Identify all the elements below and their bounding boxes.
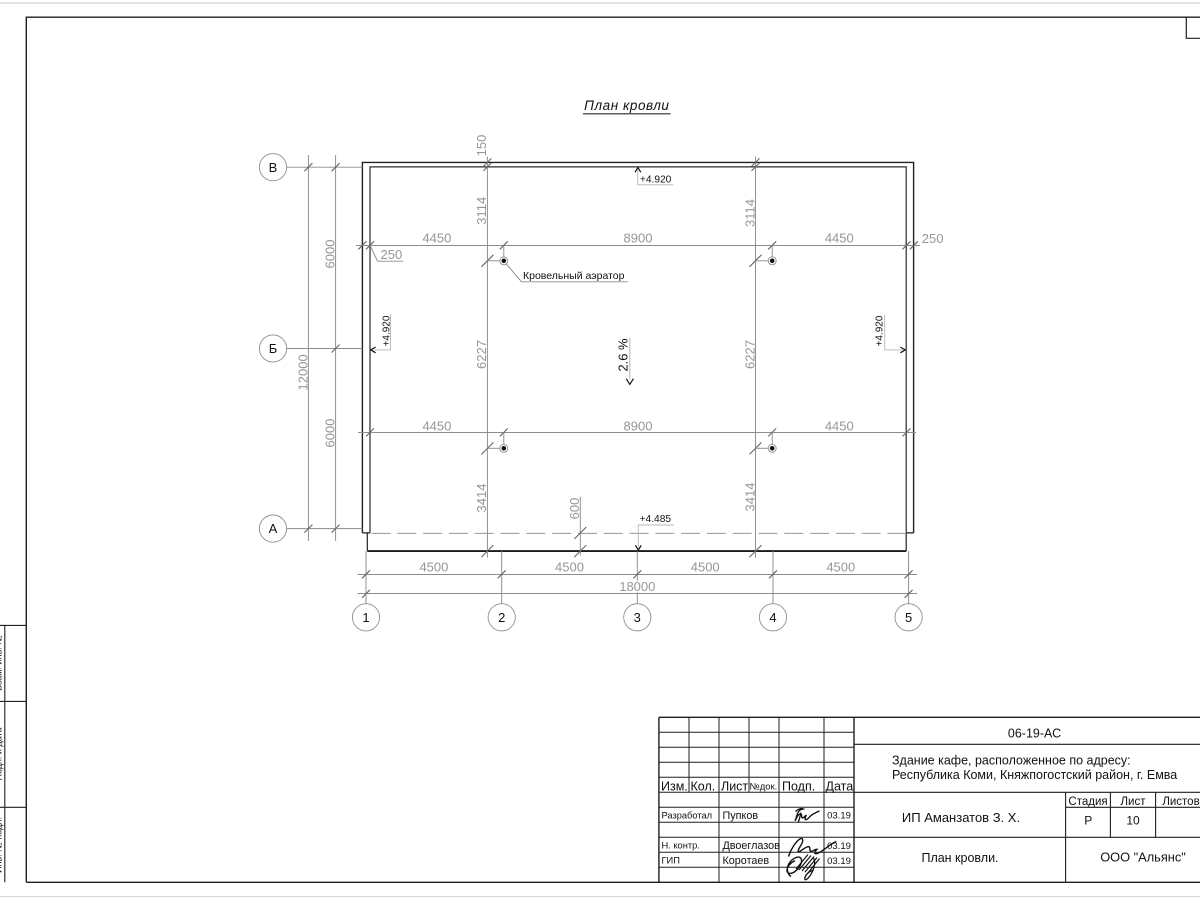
- svg-text:3114: 3114: [474, 197, 489, 225]
- svg-text:3114: 3114: [742, 199, 757, 227]
- svg-text:Р: Р: [1084, 814, 1092, 828]
- svg-text:Кровельный аэратор: Кровельный аэратор: [523, 270, 625, 282]
- svg-text:3414: 3414: [742, 483, 757, 512]
- svg-text:Взам. инв. №: Взам. инв. №: [0, 635, 3, 691]
- svg-text:6227: 6227: [474, 340, 489, 369]
- svg-text:12000: 12000: [295, 354, 310, 390]
- svg-text:Республика Коми, Княжпогостски: Республика Коми, Княжпогостский район, г…: [892, 768, 1177, 782]
- svg-text:ГИП: ГИП: [662, 856, 680, 866]
- svg-text:03.19: 03.19: [827, 841, 851, 852]
- svg-text:+4.485: +4.485: [640, 514, 672, 525]
- svg-text:6227: 6227: [742, 340, 757, 369]
- svg-text:А: А: [269, 521, 278, 536]
- svg-text:Пупков: Пупков: [723, 810, 759, 822]
- svg-text:ИП Аманзатов З. Х.: ИП Аманзатов З. Х.: [902, 810, 1020, 825]
- svg-text:5: 5: [905, 610, 912, 625]
- svg-text:+4.920: +4.920: [381, 315, 392, 346]
- svg-text:4450: 4450: [422, 231, 451, 246]
- svg-text:250: 250: [922, 231, 944, 246]
- svg-text:Здание кафе, расположенное по: Здание кафе, расположенное по адресу:: [892, 754, 1131, 768]
- svg-text:Подп. и дата: Подп. и дата: [0, 727, 3, 780]
- svg-text:250: 250: [381, 247, 403, 262]
- svg-text:600: 600: [567, 498, 582, 520]
- svg-text:Инв. № подл.: Инв. № подл.: [0, 817, 3, 873]
- svg-text:Коротаев: Коротаев: [723, 855, 770, 867]
- svg-text:1: 1: [362, 610, 369, 625]
- svg-text:03.19: 03.19: [827, 811, 851, 822]
- svg-text:В: В: [269, 160, 278, 175]
- svg-text:6000: 6000: [322, 240, 337, 269]
- svg-text:18000: 18000: [619, 579, 655, 594]
- svg-text:3414: 3414: [474, 484, 489, 513]
- svg-text:Кол.: Кол.: [691, 779, 716, 793]
- svg-text:+4.920: +4.920: [874, 315, 885, 346]
- svg-text:2.6 %: 2.6 %: [616, 338, 631, 372]
- svg-text:03.19: 03.19: [827, 856, 851, 867]
- svg-text:6000: 6000: [322, 419, 337, 448]
- svg-text:06-19-АС: 06-19-АС: [1008, 727, 1061, 741]
- svg-text:4450: 4450: [825, 418, 854, 433]
- svg-text:Листов: Листов: [1162, 796, 1199, 808]
- svg-text:2: 2: [498, 610, 505, 625]
- svg-text:Двоеглазов: Двоеглазов: [723, 840, 781, 852]
- svg-text:4: 4: [769, 610, 776, 625]
- svg-text:4500: 4500: [691, 560, 720, 575]
- svg-text:4450: 4450: [825, 231, 854, 246]
- svg-text:Стадия: Стадия: [1068, 796, 1107, 808]
- svg-text:10: 10: [1126, 814, 1140, 828]
- svg-text:ООО "Альянс": ООО "Альянс": [1100, 850, 1186, 865]
- svg-text:8900: 8900: [624, 418, 653, 433]
- svg-text:Изм.: Изм.: [661, 779, 688, 793]
- svg-text:План кровли: План кровли: [584, 98, 669, 113]
- svg-text:Дата: Дата: [826, 779, 854, 793]
- svg-text:Подп.: Подп.: [782, 779, 815, 793]
- svg-text:Н. контр.: Н. контр.: [662, 841, 700, 851]
- svg-text:4450: 4450: [422, 418, 451, 433]
- svg-text:Лист: Лист: [721, 779, 748, 793]
- svg-text:Разработал: Разработал: [662, 810, 713, 820]
- svg-text:150: 150: [474, 135, 489, 157]
- svg-text:+4.920: +4.920: [640, 175, 672, 186]
- svg-text:План кровли.: План кровли.: [921, 851, 998, 865]
- svg-text:3: 3: [634, 610, 641, 625]
- svg-text:Лист: Лист: [1121, 796, 1147, 808]
- svg-text:4500: 4500: [555, 560, 584, 575]
- svg-text:№док.: №док.: [750, 782, 778, 793]
- svg-text:Б: Б: [269, 341, 278, 356]
- svg-text:8900: 8900: [624, 231, 653, 246]
- svg-text:4500: 4500: [826, 560, 855, 575]
- svg-text:4500: 4500: [419, 560, 448, 575]
